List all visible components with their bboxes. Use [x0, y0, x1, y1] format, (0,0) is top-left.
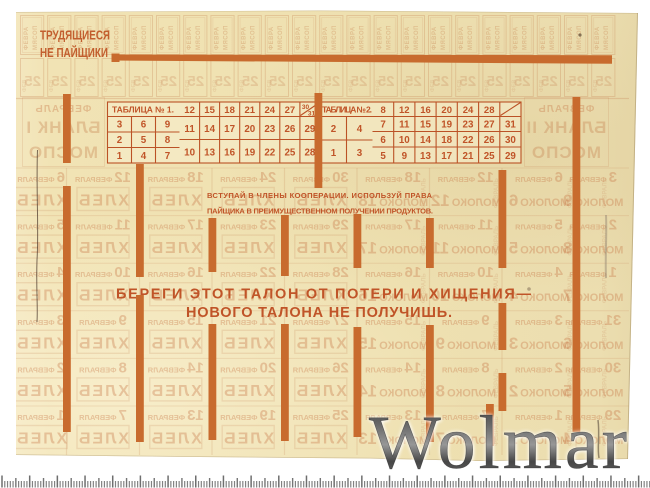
- svg-text:Wolmar: Wolmar: [369, 401, 630, 485]
